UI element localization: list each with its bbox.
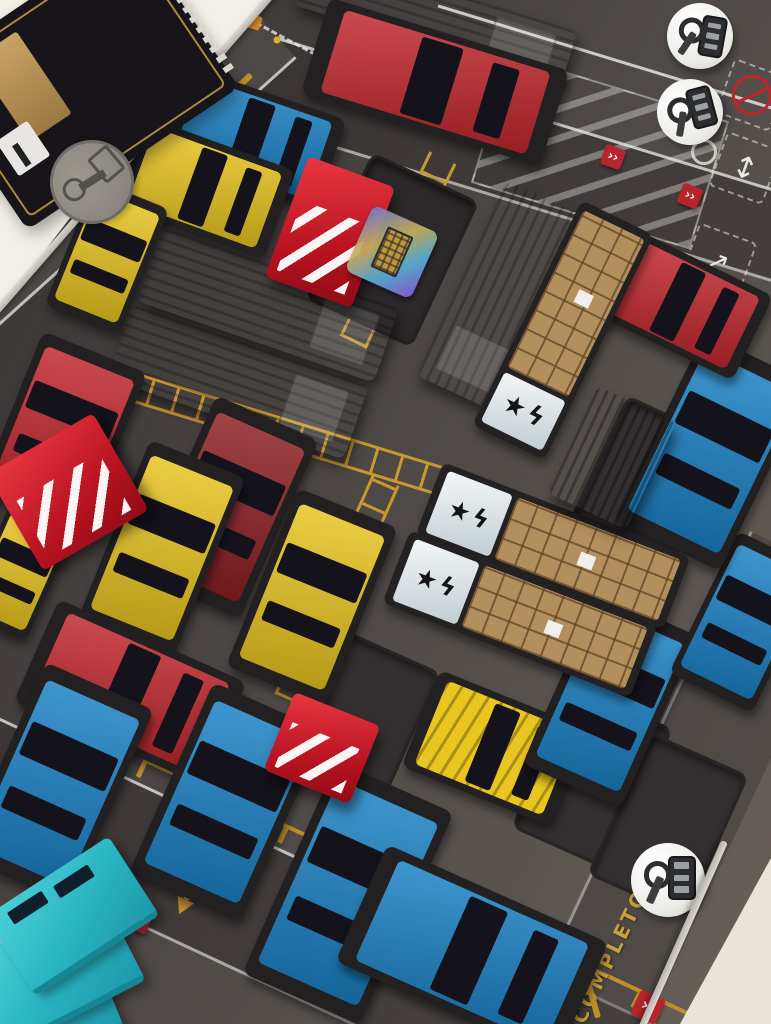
off-board-components (0, 0, 771, 1024)
board-game-photo: COMPLETOCOMPLETOP↕↗››››››››››››››★ϟ★ϟ★ϟ (0, 0, 771, 1024)
